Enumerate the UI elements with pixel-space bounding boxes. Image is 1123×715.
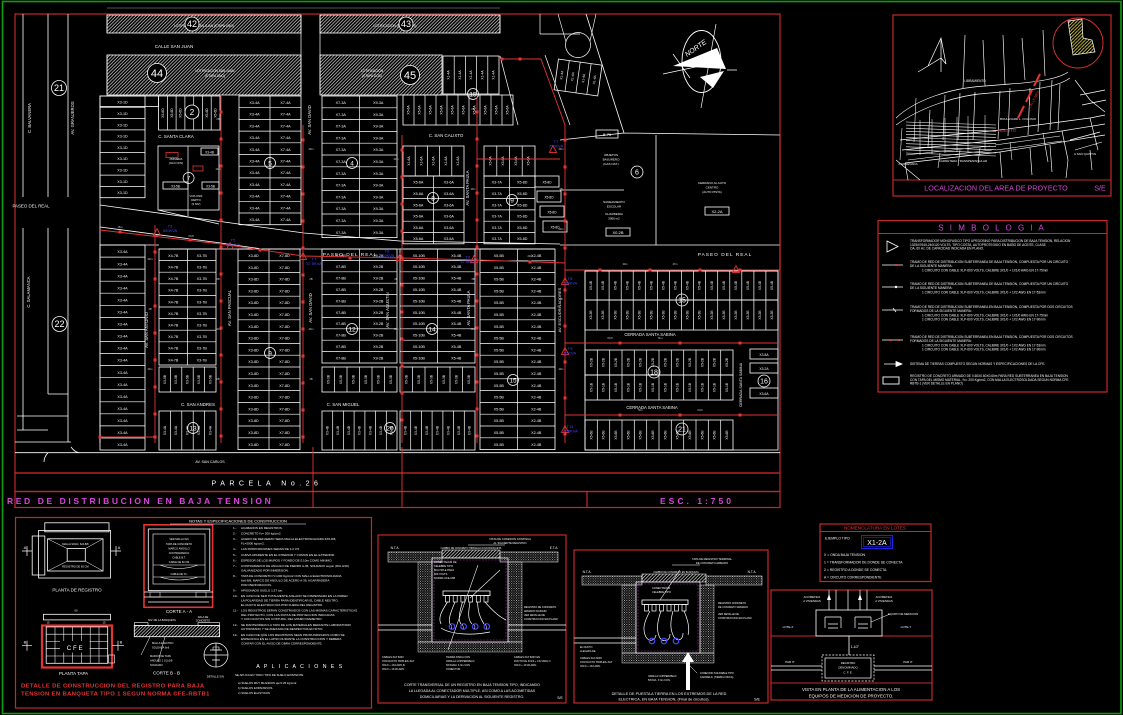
svg-text:X5-4B: X5-4B — [451, 299, 462, 303]
svg-text:X3-8D: X3-8D — [248, 443, 259, 447]
svg-text:A P L I C A C I O N E S: A P L I C A C I O N E S — [256, 664, 344, 670]
svg-text:X5-5B: X5-5B — [494, 360, 505, 364]
svg-text:X5-2B: X5-2B — [639, 357, 643, 367]
svg-text:X3-8D: X3-8D — [248, 337, 259, 341]
svg-text:X3-8D: X3-8D — [248, 396, 259, 400]
svg-text:X5-3B: X5-3B — [674, 310, 678, 320]
svg-text:X5-6A: X5-6A — [440, 105, 444, 115]
svg-text:15: 15 — [678, 298, 686, 305]
svg-text:6.-: 6.- — [233, 558, 237, 562]
svg-text:(AUTO PISTA): (AUTO PISTA) — [702, 190, 722, 194]
svg-text:3B: 3B — [559, 297, 562, 301]
svg-text:X5-5B: X5-5B — [494, 325, 505, 329]
svg-text:4: 4 — [350, 160, 354, 167]
svg-text:X1-6A: X1-6A — [419, 156, 423, 166]
svg-text:ACERO DE REFUERZO SERA MALLA E: ACERO DE REFUERZO SERA MALLA ELECTROSOLD… — [241, 537, 336, 541]
svg-text:X3-4A: X3-4A — [208, 425, 212, 435]
svg-text:ESCOLAR: ESCOLAR — [607, 205, 622, 209]
svg-text:VISTA EN PLANTA DE LA ALIMENTA: VISTA EN PLANTA DE LA ALIMENTACION A LOS — [802, 687, 900, 692]
svg-text:CONCRETO: CONCRETO — [196, 620, 210, 623]
svg-text:X3-4A: X3-4A — [249, 101, 260, 105]
svg-text:AV. SAN CARLOS: AV. SAN CARLOS — [195, 460, 225, 464]
svg-text:AV. SAN AGUSTIN: AV. SAN AGUSTIN — [385, 292, 390, 327]
svg-text:PARCELA No.26: PARCELA No.26 — [212, 481, 323, 488]
svg-text:X0-6: X0-6 — [697, 408, 703, 412]
svg-text:2B: 2B — [394, 277, 397, 281]
svg-text:X3-5B: X3-5B — [174, 374, 178, 384]
svg-text:X2-4B: X2-4B — [531, 254, 542, 258]
svg-text:X5-3B: X5-3B — [625, 310, 629, 320]
svg-text:X2-4B: X2-4B — [531, 407, 542, 411]
svg-text:X3-4B: X3-4B — [326, 425, 330, 435]
svg-text:X7-3A: X7-3A — [336, 125, 347, 129]
svg-text:X3-7A: X3-7A — [492, 181, 503, 185]
svg-text:CORTE TRANSVERSAL DE UN REGIST: CORTE TRANSVERSAL DE UN REGISTRO EN BAJA… — [404, 683, 540, 687]
svg-text:X5-4B: X5-4B — [451, 334, 462, 338]
svg-text:15: 15 — [509, 377, 517, 384]
svg-text:N.T.A.: N.T.A. — [583, 570, 592, 574]
svg-text:X5-6B: X5-6B — [663, 430, 667, 440]
svg-text:X3-6A: X3-6A — [759, 392, 769, 396]
svg-text:REGISTRO DE CONCRETO: REGISTRO DE CONCRETO — [524, 606, 556, 609]
svg-text:X5-1B: X5-1B — [639, 382, 643, 392]
svg-text:X3-4A: X3-4A — [117, 298, 128, 302]
svg-text:X4-7B: X4-7B — [168, 300, 179, 304]
svg-text:RBTB-1 (VER DETALLE EN PLANO): RBTB-1 (VER DETALLE EN PLANO) — [910, 382, 963, 386]
svg-text:X3-4A: X3-4A — [117, 286, 128, 290]
svg-text:3000 m2: 3000 m2 — [608, 217, 620, 221]
svg-text:(OLD CFN): (OLD CFN) — [169, 161, 183, 165]
svg-text:X3-7B: X3-7B — [197, 312, 208, 316]
svg-text:7.-: 7.- — [233, 564, 237, 568]
svg-text:CALLE SAN JUAN: CALLE SAN JUAN — [155, 44, 194, 49]
svg-text:HUERTO: HUERTO — [998, 128, 1017, 133]
svg-text:X7-8D: X7-8D — [279, 337, 290, 341]
svg-text:X5-5B: X5-5B — [494, 348, 505, 352]
svg-text:X9-2B: X9-2B — [373, 334, 384, 338]
svg-text:X5-8D: X5-8D — [517, 181, 528, 185]
svg-text:2.-: 2.- — [233, 532, 237, 536]
svg-text:X5-4B: X5-4B — [758, 280, 762, 290]
svg-text:X3-4A: X3-4A — [249, 195, 260, 199]
svg-text:X2-4B: X2-4B — [531, 396, 542, 400]
svg-text:3X1/0 + 1X2 AWG: 3X1/0 + 1X2 AWG — [580, 665, 600, 668]
svg-text:X5-2B: X5-2B — [663, 357, 667, 367]
svg-text:A SAN QUINTIN: A SAN QUINTIN — [1074, 152, 1096, 156]
svg-text:VER DETALLE DE: VER DETALLE DE — [524, 614, 545, 617]
svg-text:DETALLE DE PUESTA A TIERRA EN: DETALLE DE PUESTA A TIERRA EN LOS EXTREM… — [612, 692, 727, 696]
svg-text:A VIVIENDAS: A VIVIENDAS — [803, 599, 821, 603]
svg-text:X5-2B: X5-2B — [626, 357, 630, 367]
svg-text:AV. SANTA PAULA: AV. SANTA PAULA — [465, 170, 470, 205]
svg-text:X5-2B: X5-2B — [651, 357, 655, 367]
svg-text:X3-4A: X3-4A — [117, 383, 128, 387]
svg-text:14: 14 — [428, 326, 436, 333]
svg-text:LA POLARIDAD DE TIERRA PARA ID: LA POLARIDAD DE TIERRA PARA IDENTIFICAR … — [241, 598, 339, 602]
svg-text:X5-3B: X5-3B — [589, 310, 593, 320]
svg-text:X7-8D: X7-8D — [279, 431, 290, 435]
svg-text:X5-4B: X5-4B — [746, 280, 750, 290]
svg-text:X5-3B: X5-3B — [734, 310, 738, 320]
svg-text:X7-3A: X7-3A — [336, 219, 347, 223]
svg-text:X3-1D: X3-1D — [117, 135, 128, 139]
svg-text:X7-8B: X7-8B — [336, 265, 347, 269]
svg-text:ANGULO 1 1/2x1/8: ANGULO 1 1/2x1/8 — [150, 659, 173, 663]
svg-text:X3-5B: X3-5B — [171, 184, 180, 188]
svg-text:X3-4A: X3-4A — [117, 347, 128, 351]
svg-text:X5-4B: X5-4B — [710, 280, 714, 290]
svg-text:40m: 40m — [215, 167, 220, 171]
svg-text:X9-2B: X9-2B — [373, 322, 384, 326]
svg-text:X9-3A: X9-3A — [373, 219, 384, 223]
svg-text:21: 21 — [678, 427, 686, 434]
svg-text:X5-8D: X5-8D — [517, 192, 528, 196]
svg-text:X3-4B: X3-4B — [414, 425, 418, 435]
svg-text:X7-8B: X7-8B — [336, 277, 347, 281]
svg-text:EN CASO DE SER TOTALMENTE AISL: EN CASO DE SER TOTALMENTE AISLADO SE DIS… — [241, 594, 348, 598]
svg-text:X5-3B: X5-3B — [467, 374, 471, 384]
svg-text:DETALLE S/N: DETALLE S/N — [207, 674, 224, 678]
svg-text:X0-2B: X0-2B — [612, 230, 623, 235]
svg-text:500KVA: 500KVA — [380, 253, 395, 258]
svg-text:X5-3B: X5-3B — [613, 310, 617, 320]
svg-text:LOTE-X: LOTE-X — [783, 625, 794, 629]
svg-text:CONEXION SOLDABLE TIPO: CONEXION SOLDABLE TIPO — [700, 672, 734, 675]
svg-text:44: 44 — [151, 68, 163, 80]
svg-text:X4-7B: X4-7B — [168, 335, 179, 339]
svg-text:c) SUELOS ELASTICOS: c) SUELOS ELASTICOS — [238, 691, 270, 695]
svg-text:1-1/2": 1-1/2" — [851, 645, 859, 649]
svg-text:1 CIRCUITO CON CABLE XLP-600 V: 1 CIRCUITO CON CABLE XLP-600 VOLTS, CALI… — [922, 291, 1046, 295]
svg-text:CONECTOR: CONECTOR — [446, 668, 460, 671]
svg-text:X3-8D: X3-8D — [248, 360, 259, 364]
svg-text:X5-10B: X5-10B — [413, 254, 426, 258]
svg-text:X3-7B: X3-7B — [197, 324, 208, 328]
svg-text:600 VOLTS: 600 VOLTS — [434, 572, 448, 576]
svg-text:ARMADO 60x60x60: ARMADO 60x60x60 — [524, 610, 547, 613]
svg-text:C. BALVANERA: C. BALVANERA — [27, 103, 32, 133]
svg-text:X4-7B: X4-7B — [168, 266, 179, 270]
svg-text:X1-4A: X1-4A — [447, 70, 451, 80]
svg-text:CAMBIO DE CONCRETO HIDRAULICO: CAMBIO DE CONCRETO HIDRAULICO EN BANQUET… — [441, 547, 502, 550]
svg-text:AUTORIZADO Y SE ANEXARA DE RES: AUTORIZADO Y SE ANEXARA DE RESPECTIVA EN… — [241, 627, 323, 631]
svg-text:X3-4A: X3-4A — [117, 443, 128, 447]
svg-text:20m: 20m — [527, 254, 532, 258]
svg-text:X5-4B: X5-4B — [613, 280, 617, 290]
svg-text:VER MALLA 6x6: VER MALLA 6x6 — [169, 537, 189, 541]
svg-text:X3-7B: X3-7B — [197, 254, 208, 258]
svg-text:X7-4A: X7-4A — [280, 113, 291, 117]
svg-text:3X1/0 + 1X1/0 AWG: 3X1/0 + 1X1/0 AWG — [514, 664, 536, 667]
svg-text:X5-10B: X5-10B — [413, 345, 426, 349]
svg-text:B-76: B-76 — [603, 132, 612, 137]
svg-text:X1-4A: X1-4A — [480, 70, 484, 80]
svg-text:A: A — [24, 545, 27, 550]
svg-text:X5-10B: X5-10B — [413, 311, 426, 315]
svg-text:10.-: 10.- — [233, 594, 238, 598]
svg-text:X3-4A: X3-4A — [117, 407, 128, 411]
svg-text:A VIVIENDAS: A VIVIENDAS — [875, 599, 893, 603]
svg-text:X5-10B: X5-10B — [413, 277, 426, 281]
svg-text:X5-3B: X5-3B — [710, 310, 714, 320]
svg-text:X5-3B: X5-3B — [364, 374, 368, 384]
svg-text:X5-6B: X5-6B — [626, 430, 630, 440]
svg-text:CON DUCTO TRIPLEX+XLP: CON DUCTO TRIPLEX+XLP — [580, 661, 613, 664]
svg-text:X3-7A: X3-7A — [492, 215, 503, 219]
svg-text:CERRADO AL AUTO: CERRADO AL AUTO — [698, 181, 727, 185]
svg-text:X9-3A: X9-3A — [373, 125, 384, 129]
svg-text:X7-4A: X7-4A — [280, 124, 291, 128]
svg-text:X5-1B: X5-1B — [713, 382, 717, 392]
svg-text:CORTE B - B: CORTE B - B — [153, 670, 180, 675]
svg-text:CABLE DE 60 CM: CABLE DE 60 CM — [169, 561, 189, 564]
svg-text:X5-6A: X5-6A — [451, 105, 455, 115]
svg-text:X3-8D: X3-8D — [248, 313, 259, 317]
svg-text:X4-7B: X4-7B — [168, 347, 179, 351]
svg-text:2B: 2B — [559, 187, 562, 191]
svg-text:X3-4A: X3-4A — [197, 425, 201, 435]
svg-text:X3-7B: X3-7B — [197, 335, 208, 339]
svg-text:X5-3B: X5-3B — [404, 374, 408, 384]
svg-text:X5-6A: X5-6A — [489, 156, 493, 166]
svg-text:C. F. E.: C. F. E. — [843, 671, 852, 675]
svg-text:X7-4A: X7-4A — [280, 206, 291, 210]
svg-text:X5-6D: X5-6D — [161, 108, 165, 118]
svg-text:DE LA SIGUIENTE MANERA:: DE LA SIGUIENTE MANERA: — [910, 264, 953, 268]
svg-text:40m: 40m — [393, 157, 398, 161]
svg-text:X5-1B: X5-1B — [676, 382, 680, 392]
svg-text:X5-5B: X5-5B — [494, 313, 505, 317]
svg-text:X3-2A: X3-2A — [759, 367, 769, 371]
svg-text:PLANTA TAPA: PLANTA TAPA — [59, 671, 88, 676]
svg-text:X5-6A: X5-6A — [413, 203, 424, 207]
svg-text:X5-4B: X5-4B — [722, 280, 726, 290]
svg-text:A = CIRCUITO CORRESPONDIENTE: A = CIRCUITO CORRESPONDIENTE — [824, 576, 882, 580]
svg-text:X4-7B: X4-7B — [168, 324, 179, 328]
svg-text:X3-1D: X3-1D — [117, 146, 128, 150]
svg-text:(ETAPA UNO): (ETAPA UNO) — [205, 74, 225, 78]
svg-text:43: 43 — [401, 19, 411, 29]
svg-text:TAPA DE REGISTRO TERMINAL: TAPA DE REGISTRO TERMINAL — [692, 557, 733, 561]
svg-text:X5-10B: X5-10B — [413, 322, 426, 326]
svg-text:X9-3A: X9-3A — [373, 160, 384, 164]
svg-text:AV. SAN DAVID: AV. SAN DAVID — [308, 293, 313, 322]
svg-text:X5-6B: X5-6B — [614, 430, 618, 440]
svg-text:X3-7B: X3-7B — [197, 289, 208, 293]
svg-text:X3-8D: X3-8D — [248, 278, 259, 282]
svg-text:X5-3B: X5-3B — [758, 310, 762, 320]
svg-text:500KVA: 500KVA — [563, 281, 578, 286]
svg-text:(ETAPA DOS): (ETAPA DOS) — [362, 74, 382, 78]
svg-text:CERRADA SANTA SABINA: CERRADA SANTA SABINA — [626, 405, 678, 410]
svg-text:X2-4B: X2-4B — [531, 419, 542, 423]
svg-text:500KVA: 500KVA — [226, 242, 241, 247]
svg-text:X1-6A: X1-6A — [444, 156, 448, 166]
svg-text:DOMICILIARIAS Y LA DERIVACION: DOMICILIARIAS Y LA DERIVACION AL SIGUIEN… — [420, 695, 525, 699]
svg-text:X5-2B: X5-2B — [614, 357, 618, 367]
svg-text:1.-: 1.- — [233, 526, 237, 530]
svg-text:X3-4B: X3-4B — [404, 425, 408, 435]
svg-text:X5-8D: X5-8D — [517, 215, 528, 219]
svg-text:3X1/0 + 1X2 AWG B.: 3X1/0 + 1X2 AWG B. — [382, 664, 406, 667]
svg-text:Y CON DUCTOS SIN COSTURA, DEL: Y CON DUCTOS SIN COSTURA, DEL MISMO DIAM… — [241, 617, 323, 621]
svg-text:7: 7 — [187, 176, 190, 182]
svg-text:2B: 2B — [216, 377, 219, 381]
svg-text:750KVA: 750KVA — [549, 144, 564, 149]
svg-text:X9-2B: X9-2B — [373, 356, 384, 360]
svg-text:X7-3A: X7-3A — [336, 136, 347, 140]
svg-text:X3-8D: X3-8D — [248, 384, 259, 388]
svg-text:11.-: 11.- — [233, 608, 238, 612]
svg-text:X3-8D: X3-8D — [248, 301, 259, 305]
svg-text:X5-5B: X5-5B — [494, 431, 505, 435]
svg-text:NOMENCLATURA EN LOTES: NOMENCLATURA EN LOTES — [844, 526, 906, 531]
svg-text:X2-4B: X2-4B — [531, 360, 542, 364]
svg-text:X7-4A: X7-4A — [280, 218, 291, 222]
svg-text:BASURERO: BASURERO — [603, 158, 621, 162]
svg-text:EL DUCTO: EL DUCTO — [580, 646, 593, 649]
svg-text:MALLA SOLD. 6x6-8/8: MALLA SOLD. 6x6-8/8 — [62, 542, 89, 546]
svg-text:DE LA SIGUIENTE MANERA:: DE LA SIGUIENTE MANERA: — [910, 286, 953, 290]
svg-text:5/8 DIAM. X 3m CON: 5/8 DIAM. X 3m CON — [446, 664, 470, 667]
svg-text:13: 13 — [189, 425, 197, 432]
svg-text:X = ONDA BAJA TENSION: X = ONDA BAJA TENSION — [824, 553, 865, 557]
svg-text:X1-4A: X1-4A — [469, 70, 473, 80]
svg-text:CAMBIO DE CONCRETO EN BANQUETA: CAMBIO DE CONCRETO EN BANQUETA — [653, 571, 699, 574]
svg-text:2B: 2B — [216, 117, 219, 121]
svg-text:X5-3B: X5-3B — [454, 374, 458, 384]
svg-text:X5-4B: X5-4B — [674, 280, 678, 290]
svg-text:X3-4B: X3-4B — [205, 150, 214, 154]
svg-text:X4-7B: X4-7B — [168, 277, 179, 281]
svg-text:CERRADA SANTA SABINA: CERRADA SANTA SABINA — [739, 362, 743, 407]
svg-text:25KVA: 25KVA — [564, 351, 576, 356]
svg-text:X3-4B: X3-4B — [446, 425, 450, 435]
svg-text:X5-4B: X5-4B — [649, 280, 653, 290]
svg-text:X3-4A: X3-4A — [117, 335, 128, 339]
svg-text:37.5KVA: 37.5KVA — [460, 259, 476, 264]
svg-text:CABLES XLP 600V EN: CABLES XLP 600V EN — [514, 656, 540, 659]
svg-text:X2-4B: X2-4B — [531, 266, 542, 270]
svg-text:X1-6A: X1-6A — [432, 156, 436, 166]
svg-text:DUCTO DE 3X1/0 + 1X2 AWG O: DUCTO DE 3X1/0 + 1X2 AWG O — [514, 660, 551, 663]
svg-text:EQUIPO DE MEDICION: EQUIPO DE MEDICION — [888, 612, 918, 616]
svg-text:X5-2B: X5-2B — [602, 357, 606, 367]
svg-text:1 = TRANSFORMADOR DE DONDE SE: 1 = TRANSFORMADOR DE DONDE SE CONECTA — [824, 561, 903, 565]
svg-text:SOLDADA 6x6: SOLDADA 6x6 — [152, 646, 170, 650]
svg-text:X5-6D: X5-6D — [179, 108, 183, 118]
svg-text:S/E: S/E — [557, 696, 563, 700]
svg-text:4.-: 4.- — [233, 547, 237, 551]
svg-text:X7-8B: X7-8B — [336, 356, 347, 360]
svg-text:CONSTRUCCION EN PLANO: CONSTRUCCION EN PLANO — [524, 618, 558, 621]
svg-text:X5-1B: X5-1B — [663, 382, 667, 392]
svg-text:X5-8D: X5-8D — [517, 226, 528, 230]
svg-text:C. SALAMANCA: C. SALAMANCA — [26, 276, 31, 307]
svg-text:74m: 74m — [657, 336, 662, 340]
svg-text:FL=5000 kg/cm2.: FL=5000 kg/cm2. — [241, 542, 265, 546]
svg-text:X3-8D: X3-8D — [248, 289, 259, 293]
svg-text:VARILLA COPPERWELD: VARILLA COPPERWELD — [446, 660, 475, 663]
svg-text:X5-2B: X5-2B — [676, 357, 680, 367]
svg-text:AV. SAN ANTONIO: AV. SAN ANTONIO — [144, 311, 149, 348]
svg-text:X5-10B: X5-10B — [413, 265, 426, 269]
svg-text:EQUIPOS DE MEDICION DE PROYECT: EQUIPOS DE MEDICION DE PROYECTO. — [809, 694, 894, 699]
svg-text:X3-1D: X3-1D — [117, 112, 128, 116]
svg-text:X5-5B: X5-5B — [494, 289, 505, 293]
svg-text:VER DETALLE DE: VER DETALLE DE — [718, 613, 739, 616]
svg-text:12: 12 — [348, 326, 356, 333]
svg-text:X3-5B: X3-5B — [206, 184, 215, 188]
svg-text:CONECTADOR DE: CONECTADOR DE — [434, 560, 457, 564]
svg-text:LOCALIZACION DEL AREA DE PROYE: LOCALIZACION DEL AREA DE PROYECTO — [924, 184, 1068, 193]
svg-text:X5-4B: X5-4B — [451, 311, 462, 315]
svg-text:X3-6A: X3-6A — [444, 237, 455, 241]
svg-text:X5-4B: X5-4B — [451, 288, 462, 292]
svg-text:CABLE DE T.F.: CABLE DE T.F. — [171, 573, 188, 576]
svg-text:X5-4B: X5-4B — [637, 280, 641, 290]
svg-text:SOLDADO: SOLDADO — [150, 663, 163, 667]
svg-text:APISONADO SUELO 1.57 ton.: APISONADO SUELO 1.57 ton. — [241, 588, 283, 592]
svg-text:X5-5B: X5-5B — [494, 419, 505, 423]
svg-text:5/8 DIA. X 3m CON.: 5/8 DIA. X 3m CON. — [648, 679, 671, 682]
svg-text:PAR 3": PAR 3" — [903, 660, 913, 664]
svg-text:b) SUELOS EXPANSIVOS.: b) SUELOS EXPANSIVOS. — [238, 686, 273, 690]
svg-text:45: 45 — [404, 70, 416, 82]
svg-text:X7-3A: X7-3A — [336, 113, 347, 117]
svg-text:CONTRAMARCO: CONTRAMARCO — [169, 551, 190, 555]
svg-text:X7-8D: X7-8D — [279, 266, 290, 270]
svg-text:CERRADA SANTA SABINA: CERRADA SANTA SABINA — [624, 332, 676, 337]
svg-text:MARCO DE TAPA: MARCO DE TAPA — [150, 654, 171, 658]
svg-text:X5-3B: X5-3B — [746, 310, 750, 320]
svg-text:X5-5B: X5-5B — [494, 337, 505, 341]
svg-text:X3-1D: X3-1D — [117, 157, 128, 161]
svg-text:X5-10B: X5-10B — [413, 288, 426, 292]
svg-text:CON DUCTO TRIPLEX+XLP: CON DUCTO TRIPLEX+XLP — [382, 660, 415, 663]
svg-text:X5-6A: X5-6A — [484, 105, 488, 115]
svg-text:S/E: S/E — [1094, 186, 1106, 193]
svg-text:500KVA: 500KVA — [163, 228, 178, 233]
svg-text:X7-8D: X7-8D — [279, 372, 290, 376]
svg-text:X3-4A: X3-4A — [249, 136, 260, 140]
svg-text:X4-7B: X4-7B — [168, 358, 179, 362]
svg-text:GALVANIZADO POR INMERSION.: GALVANIZADO POR INMERSION. — [241, 568, 289, 572]
svg-text:E.T.A.: E.T.A. — [550, 546, 559, 550]
svg-text:X5-4B: X5-4B — [451, 254, 462, 258]
svg-text:MALLA ELECTRO: MALLA ELECTRO — [152, 641, 173, 645]
svg-text:X5-3B: X5-3B — [698, 310, 702, 320]
svg-text:X5-3B: X5-3B — [662, 310, 666, 320]
svg-text:LOTIFICACION SAN JUAN: LOTIFICACION SAN JUAN — [196, 69, 236, 73]
svg-text:C. SAN ANDRES: C. SAN ANDRES — [181, 402, 215, 407]
svg-text:X5-6A: X5-6A — [413, 226, 424, 230]
svg-text:POR PERFORACION.: POR PERFORACION. — [241, 583, 272, 587]
svg-text:X3-4A: X3-4A — [249, 113, 260, 117]
svg-text:X3-7B: X3-7B — [197, 347, 208, 351]
svg-text:3X1/0 + 1X1/0 AWG: 3X1/0 + 1X1/0 AWG — [382, 668, 404, 671]
svg-text:X3-4A: X3-4A — [249, 218, 260, 222]
svg-text:X3-4A: X3-4A — [249, 183, 260, 187]
svg-text:X7-8D: X7-8D — [279, 348, 290, 352]
svg-text:X5-6D: X5-6D — [214, 108, 218, 118]
svg-text:X3-4A: X3-4A — [249, 160, 260, 164]
svg-text:ACABADOS EN REGISTROS.: ACABADOS EN REGISTROS. — [241, 526, 283, 530]
svg-text:CONTAR CON EL AVISO DE OBRA CO: CONTAR CON EL AVISO DE OBRA CORRESPONDIE… — [241, 642, 323, 646]
svg-text:X9-2B: X9-2B — [373, 299, 384, 303]
svg-text:X5-5B: X5-5B — [494, 266, 505, 270]
svg-text:X5-6A: X5-6A — [527, 156, 531, 166]
